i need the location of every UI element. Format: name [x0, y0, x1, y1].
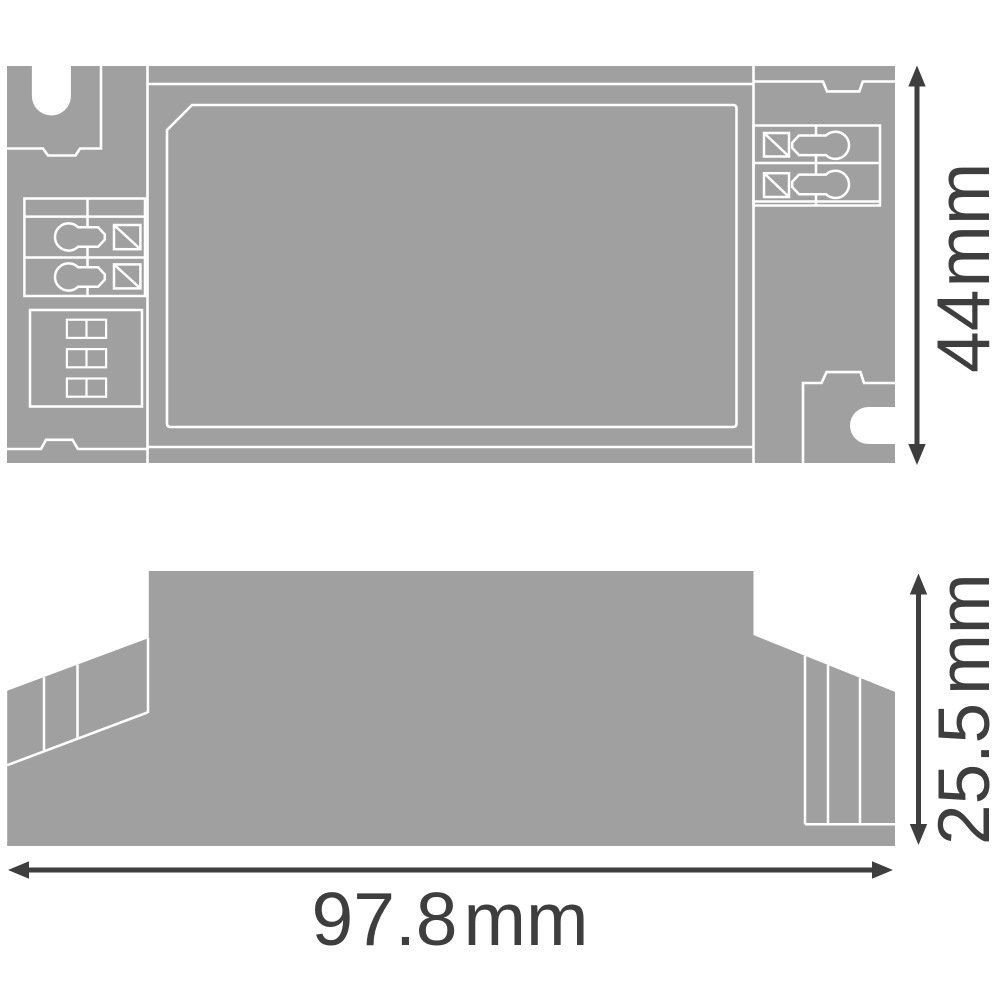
svg-text:97.8mm: 97.8mm	[312, 877, 589, 961]
svg-text:25.5mm: 25.5mm	[924, 573, 1000, 845]
svg-text:44mm: 44mm	[921, 163, 1000, 373]
